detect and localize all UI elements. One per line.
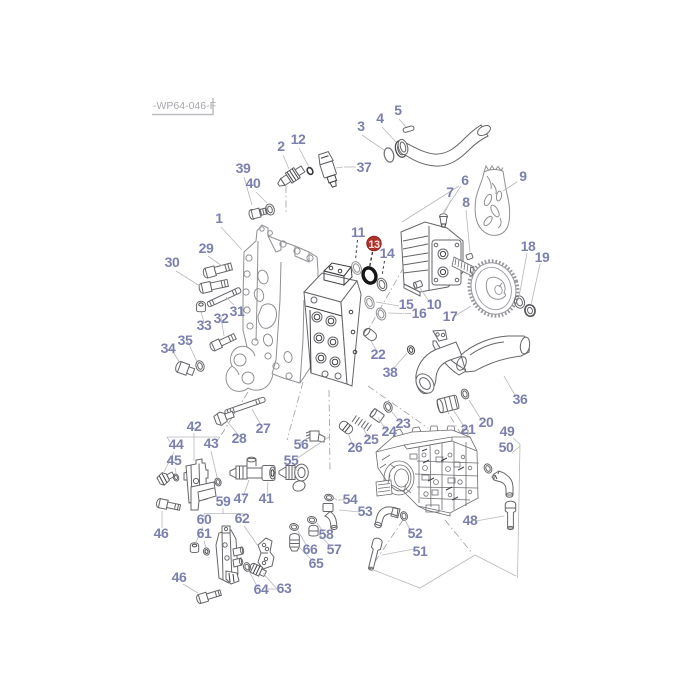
svg-text:9: 9 [519, 168, 527, 184]
svg-text:55: 55 [284, 452, 299, 468]
svg-text:53: 53 [358, 503, 373, 519]
svg-text:36: 36 [513, 391, 528, 407]
svg-text:63: 63 [277, 580, 292, 596]
svg-text:7: 7 [446, 184, 454, 200]
svg-text:10: 10 [427, 296, 442, 312]
svg-text:46: 46 [154, 525, 169, 541]
svg-text:52: 52 [408, 525, 423, 541]
svg-text:13: 13 [368, 239, 380, 251]
svg-text:25: 25 [364, 431, 379, 447]
svg-text:48: 48 [463, 512, 478, 528]
svg-text:32: 32 [214, 310, 229, 326]
svg-text:46: 46 [172, 569, 187, 585]
svg-text:44: 44 [169, 436, 184, 452]
svg-text:14: 14 [380, 245, 395, 261]
svg-text:2: 2 [277, 138, 285, 154]
svg-text:40: 40 [246, 175, 261, 191]
svg-text:45: 45 [167, 452, 182, 468]
svg-text:50: 50 [499, 439, 514, 455]
svg-text:28: 28 [232, 430, 247, 446]
svg-text:1: 1 [215, 210, 223, 226]
svg-text:58: 58 [319, 526, 334, 542]
svg-text:61: 61 [197, 525, 212, 541]
svg-text:54: 54 [343, 491, 358, 507]
svg-text:38: 38 [383, 364, 398, 380]
svg-text:59: 59 [216, 493, 231, 509]
svg-text:8: 8 [462, 194, 470, 210]
svg-text:33: 33 [197, 317, 212, 333]
svg-text:30: 30 [165, 254, 180, 270]
svg-text:29: 29 [199, 240, 214, 256]
svg-text:65: 65 [309, 555, 324, 571]
svg-text:57: 57 [327, 541, 342, 557]
svg-text:39: 39 [236, 160, 251, 176]
svg-text:51: 51 [413, 543, 428, 559]
svg-text:11: 11 [351, 224, 366, 240]
svg-text:12: 12 [291, 131, 306, 147]
svg-text:17: 17 [443, 308, 458, 324]
svg-text:24: 24 [382, 423, 397, 439]
svg-text:20: 20 [479, 414, 494, 430]
svg-text:64: 64 [254, 581, 269, 597]
svg-text:16: 16 [412, 305, 427, 321]
svg-text:62: 62 [235, 510, 250, 526]
svg-text:6: 6 [461, 172, 469, 188]
svg-text:27: 27 [256, 420, 271, 436]
svg-text:43: 43 [204, 435, 219, 451]
svg-text:-WP64-046-F: -WP64-046-F [153, 100, 216, 112]
svg-text:26: 26 [348, 439, 363, 455]
svg-text:49: 49 [500, 423, 515, 439]
svg-text:56: 56 [294, 436, 309, 452]
svg-text:23: 23 [396, 415, 411, 431]
svg-text:4: 4 [376, 110, 384, 126]
svg-text:31: 31 [230, 303, 245, 319]
svg-text:47: 47 [234, 490, 249, 506]
svg-text:41: 41 [259, 490, 274, 506]
svg-text:37: 37 [357, 159, 372, 175]
svg-text:3: 3 [357, 118, 365, 134]
svg-text:19: 19 [535, 249, 550, 265]
svg-text:21: 21 [461, 421, 476, 437]
svg-text:34: 34 [161, 340, 176, 356]
svg-text:35: 35 [178, 332, 193, 348]
svg-text:42: 42 [187, 418, 202, 434]
svg-text:5: 5 [394, 102, 402, 118]
svg-text:22: 22 [371, 346, 386, 362]
